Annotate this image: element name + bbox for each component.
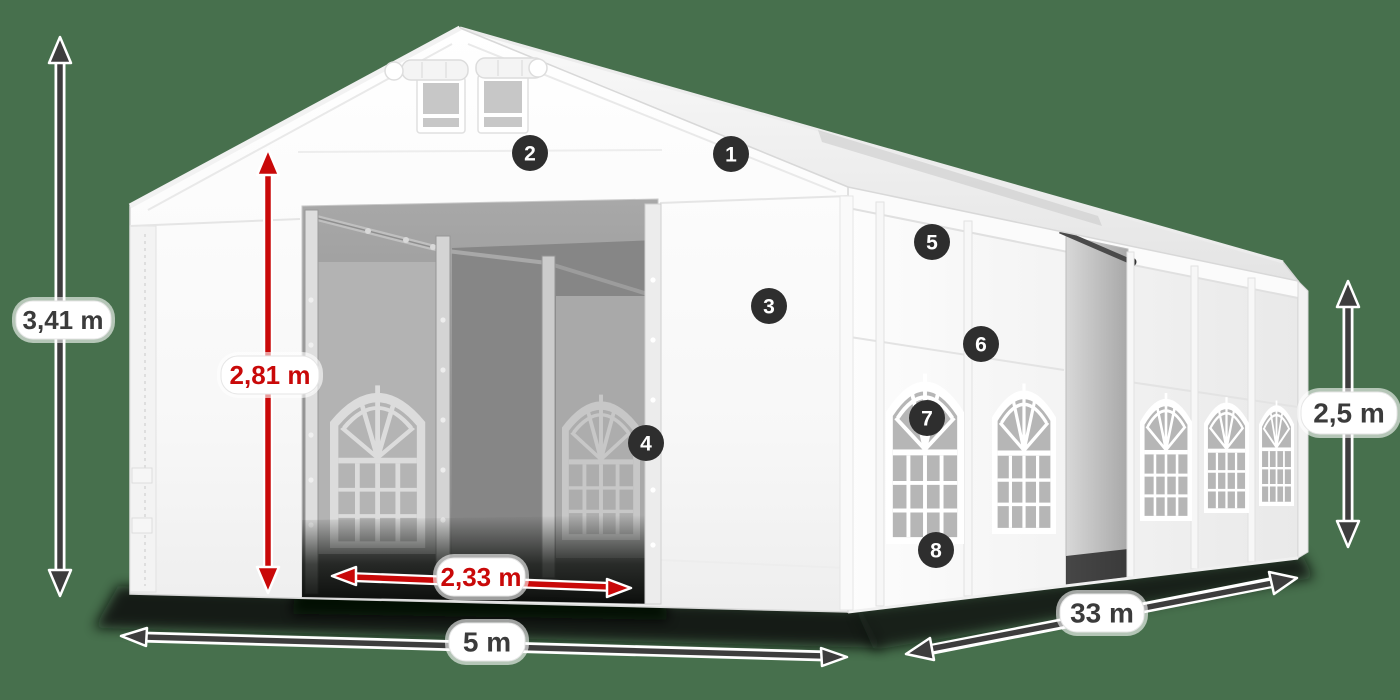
entrance-height-label: 2,81 m bbox=[217, 352, 323, 398]
svg-text:2,81 m: 2,81 m bbox=[230, 360, 311, 390]
side-window-3 bbox=[1140, 393, 1192, 521]
svg-text:2,5 m: 2,5 m bbox=[1313, 398, 1385, 429]
front-right-corner bbox=[840, 196, 853, 610]
side-height-label: 2,5 m bbox=[1297, 388, 1400, 438]
total-height-label: 3,41 m bbox=[12, 297, 115, 343]
svg-text:6: 6 bbox=[975, 334, 987, 357]
feature-badge-7: 7 bbox=[909, 400, 945, 436]
entrance-opening bbox=[302, 199, 661, 604]
vent-roller bbox=[402, 60, 468, 80]
svg-text:2,33 m: 2,33 m bbox=[441, 562, 522, 592]
side-window-5 bbox=[1259, 400, 1294, 506]
feature-badge-5: 5 bbox=[914, 224, 950, 260]
svg-text:2: 2 bbox=[524, 143, 536, 166]
svg-text:4: 4 bbox=[640, 433, 652, 456]
entrance-width-label: 2,33 m bbox=[433, 554, 529, 600]
interior-partition-left bbox=[318, 262, 436, 554]
feature-badge-2: 2 bbox=[512, 135, 548, 171]
svg-text:33 m: 33 m bbox=[1070, 598, 1134, 629]
tent-diagram-stage: 3,41 m 2,81 m 2,33 m 5 m 33 m 2,5 m 1 2 bbox=[0, 0, 1400, 700]
feature-badge-6: 6 bbox=[963, 326, 999, 362]
svg-text:8: 8 bbox=[930, 540, 942, 563]
svg-text:5: 5 bbox=[926, 232, 938, 255]
front-left-corner bbox=[130, 226, 156, 592]
feature-badge-8: 8 bbox=[918, 532, 954, 568]
width-label: 5 m bbox=[445, 619, 529, 665]
side-window-2 bbox=[992, 383, 1056, 534]
svg-text:7: 7 bbox=[921, 408, 933, 431]
length-label: 33 m bbox=[1056, 590, 1148, 636]
side-window-4 bbox=[1204, 397, 1249, 513]
feature-badge-4: 4 bbox=[628, 425, 664, 461]
svg-text:3,41 m: 3,41 m bbox=[23, 305, 104, 335]
feature-badge-3: 3 bbox=[751, 288, 787, 324]
side-door-gap bbox=[1060, 231, 1137, 585]
svg-text:1: 1 bbox=[725, 144, 737, 167]
side-window-1 bbox=[886, 374, 964, 544]
svg-text:5 m: 5 m bbox=[463, 627, 511, 658]
tent-diagram-canvas: 3,41 m 2,81 m 2,33 m 5 m 33 m 2,5 m 1 2 bbox=[0, 0, 1400, 700]
svg-text:3: 3 bbox=[763, 296, 775, 319]
entrance-right-post bbox=[645, 204, 661, 604]
feature-badge-1: 1 bbox=[713, 136, 749, 172]
